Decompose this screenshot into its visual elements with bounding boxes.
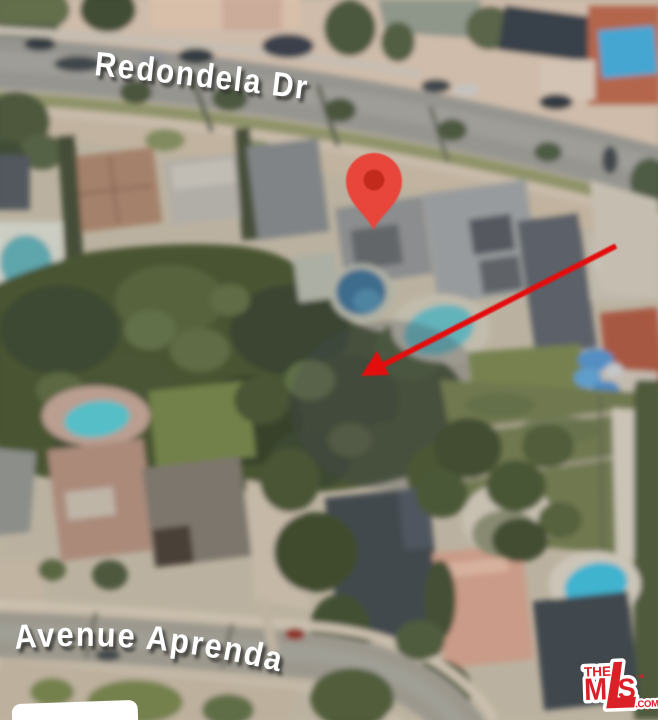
svg-text:.COM: .COM: [635, 699, 658, 711]
svg-text:TM: TM: [636, 674, 643, 680]
svg-text:M: M: [583, 671, 607, 707]
svg-text:S: S: [617, 673, 636, 706]
